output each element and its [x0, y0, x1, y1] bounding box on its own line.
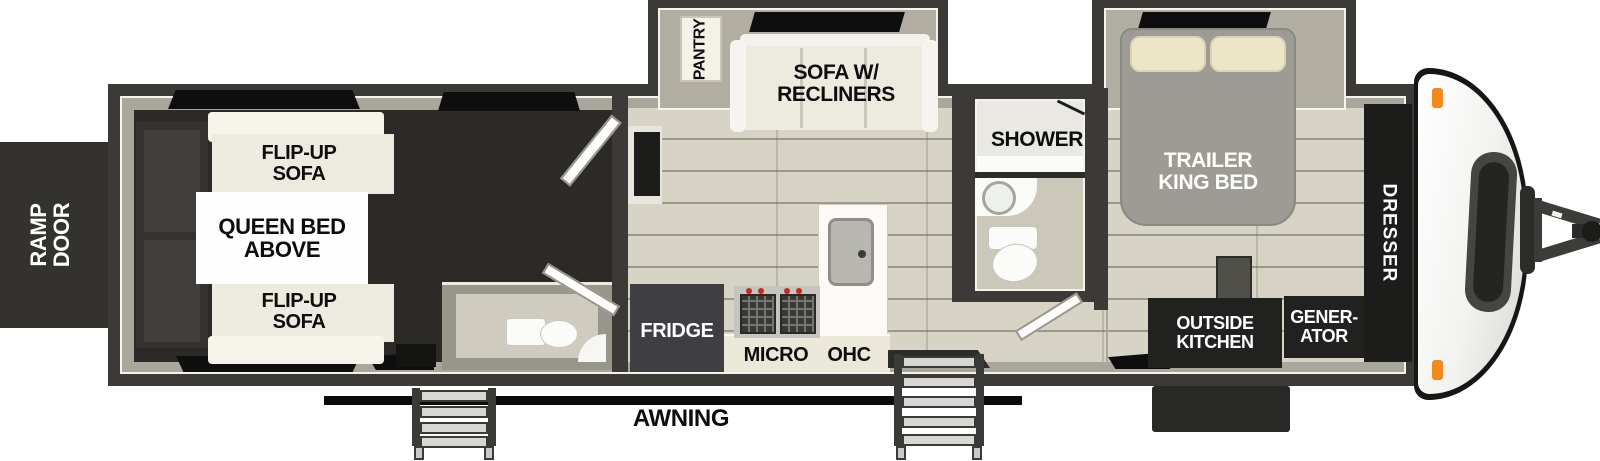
garage-window-top-left	[168, 90, 360, 109]
ohc-label: OHC	[819, 343, 879, 367]
awning-label: AWNING	[601, 404, 761, 434]
garage-step	[420, 406, 488, 418]
partition-garage-kitchen	[612, 96, 628, 372]
garage-steps-rail-right	[488, 388, 496, 446]
pantry-label-text: PANTRY	[693, 18, 710, 80]
shower-label: SHOWER	[967, 127, 1107, 153]
entry-step	[902, 416, 976, 428]
underbody-storage-box	[1152, 386, 1290, 432]
entry-step	[902, 434, 976, 446]
micro-label: MICRO	[736, 343, 816, 367]
bath-sink-bowl	[982, 181, 1016, 215]
entry-steps	[894, 354, 984, 460]
ramp-opening-window-top	[144, 130, 200, 232]
entry-steps-foot-right	[972, 446, 982, 460]
tv-icon	[634, 132, 660, 196]
stove-knob-1	[746, 288, 752, 294]
stove-knob-2	[758, 288, 764, 294]
wall-bath-bedroom	[1094, 88, 1108, 310]
propane-tank	[1520, 186, 1535, 274]
garage-step	[420, 422, 488, 434]
garage-storage-box	[396, 344, 436, 367]
ramp-opening-window-bottom	[144, 240, 200, 342]
hitch-ball-knob	[1582, 221, 1600, 242]
flip-up-sofa-bottom-label: FLIP-UP SOFA	[219, 288, 379, 336]
garage-steps-foot-left	[414, 446, 424, 460]
pillow-left	[1130, 36, 1206, 72]
garage-step	[420, 390, 488, 402]
pillow-right	[1210, 36, 1286, 72]
garage-steps	[412, 388, 496, 460]
garage-steps-foot-right	[484, 446, 494, 460]
floorplan: AWNING RAMP DOOR FLIP-UP SOFA QUEEN BED …	[0, 0, 1600, 461]
garage-steps-rail-left	[412, 388, 420, 446]
pantry-label: PANTRY	[666, 38, 736, 60]
flip-up-sofa-bottom-arm	[208, 336, 384, 364]
garage-step	[420, 436, 488, 448]
marker-light-bottom	[1432, 360, 1443, 380]
half-bath-toilet-bowl	[540, 320, 578, 348]
stove-grate-right	[780, 294, 816, 334]
sink-drain	[858, 250, 866, 258]
shower-glass	[975, 172, 1085, 178]
entry-steps-rail-left	[894, 354, 902, 446]
ramp-door-label: RAMP DOOR	[22, 190, 78, 280]
kitchen-sink	[828, 218, 874, 286]
dresser-label-text: DRESSER	[1378, 184, 1398, 283]
sofa-w-recliners-label: SOFA W/ RECLINERS	[756, 60, 916, 108]
nightstand	[1216, 256, 1252, 302]
sofa-arm-right	[922, 40, 938, 132]
entry-step	[902, 376, 976, 388]
entry-steps-rail-right	[976, 354, 984, 446]
queen-bed-above-label: QUEEN BED ABOVE	[196, 192, 368, 284]
stove-knob-4	[796, 288, 802, 294]
garage-window-top-right	[438, 92, 580, 111]
generator-label: GENER- ATOR	[1284, 296, 1364, 358]
stove-grate-left	[740, 294, 776, 334]
trailer-king-bed-label: TRAILER KING BED	[1128, 148, 1288, 196]
entry-step	[902, 396, 976, 408]
sofa-slideout-window	[749, 12, 905, 32]
stove-knob-3	[784, 288, 790, 294]
fridge-label: FRIDGE	[632, 318, 722, 344]
marker-light-top	[1432, 88, 1443, 108]
flip-up-sofa-top-label: FLIP-UP SOFA	[219, 140, 379, 188]
outside-kitchen-label: OUTSIDE KITCHEN	[1148, 298, 1282, 368]
dresser-label: DRESSER	[1364, 104, 1412, 362]
entry-steps-foot-left	[896, 446, 906, 460]
entry-step	[902, 356, 976, 368]
